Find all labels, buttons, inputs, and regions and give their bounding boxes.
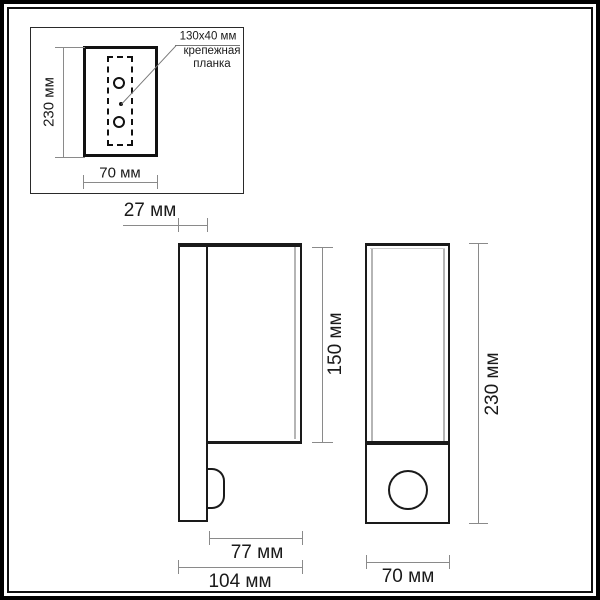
front-sensor-circle: [388, 470, 428, 510]
side-top-edge: [178, 243, 302, 247]
bracket-depth-dim-line: [123, 225, 208, 226]
inset-width-dim-line: [83, 182, 158, 183]
mounting-hole-bottom: [113, 116, 125, 128]
inset-width-dim-tick-right: [157, 175, 158, 189]
body-height-label: 150 мм: [325, 312, 347, 375]
lamp-body-outline: [206, 243, 302, 444]
body-depth-dim-line: [209, 538, 302, 539]
total-depth-dim-line: [178, 567, 302, 568]
front-inner-edge-left: [371, 248, 373, 441]
front-height-dim-tick-top: [469, 243, 488, 244]
front-divider-edge: [365, 441, 450, 445]
bracket-depth-dim-tick-left: [178, 218, 179, 232]
technical-drawing-canvas: 130x40 мм крепежная планка 230 мм 70 мм …: [0, 0, 600, 600]
mounting-strip-name-label: крепежная планка: [184, 45, 241, 71]
sensor-bump-outline: [208, 468, 225, 509]
front-width-dim-tick-right: [449, 555, 450, 569]
wall-bracket-outline: [178, 243, 208, 522]
total-depth-dim-tick-right: [302, 560, 303, 574]
front-height-dim-line: [478, 243, 479, 523]
body-height-dim-tick-top: [312, 247, 333, 248]
front-inner-edge-right: [443, 248, 445, 441]
side-inner-edge: [294, 247, 296, 439]
inset-height-dim-tick-bottom: [55, 157, 85, 158]
mounting-strip-dashed-outline: [107, 56, 133, 146]
inset-height-label: 230 мм: [41, 77, 58, 127]
mounting-strip-name-line1: крепежная: [184, 45, 241, 58]
front-width-dim-line: [366, 562, 450, 563]
inset-width-label: 70 мм: [99, 165, 140, 182]
body-height-dim-tick-bottom: [312, 442, 333, 443]
mounting-hole-top: [113, 77, 125, 89]
front-height-label: 230 мм: [482, 352, 504, 415]
total-depth-dim-tick-left: [178, 560, 179, 574]
front-inner-edge-top: [370, 248, 445, 249]
mounting-strip-size-label: 130x40 мм: [180, 30, 237, 43]
total-depth-label: 104 мм: [208, 571, 271, 593]
mounting-strip-name-line2: планка: [184, 58, 241, 71]
front-width-dim-tick-left: [366, 555, 367, 569]
inset-height-dim-line: [63, 47, 64, 157]
bracket-depth-label: 27 мм: [124, 200, 177, 222]
inset-height-dim-tick-top: [55, 47, 85, 48]
body-depth-dim-tick-left: [209, 531, 210, 545]
body-height-dim-line: [322, 247, 323, 443]
front-height-dim-tick-bottom: [469, 523, 488, 524]
bracket-depth-dim-tick-right: [207, 218, 208, 232]
body-depth-dim-tick-right: [302, 531, 303, 545]
inset-width-dim-tick-left: [83, 175, 84, 189]
front-width-label: 70 мм: [382, 566, 435, 588]
body-depth-label: 77 мм: [231, 542, 284, 564]
